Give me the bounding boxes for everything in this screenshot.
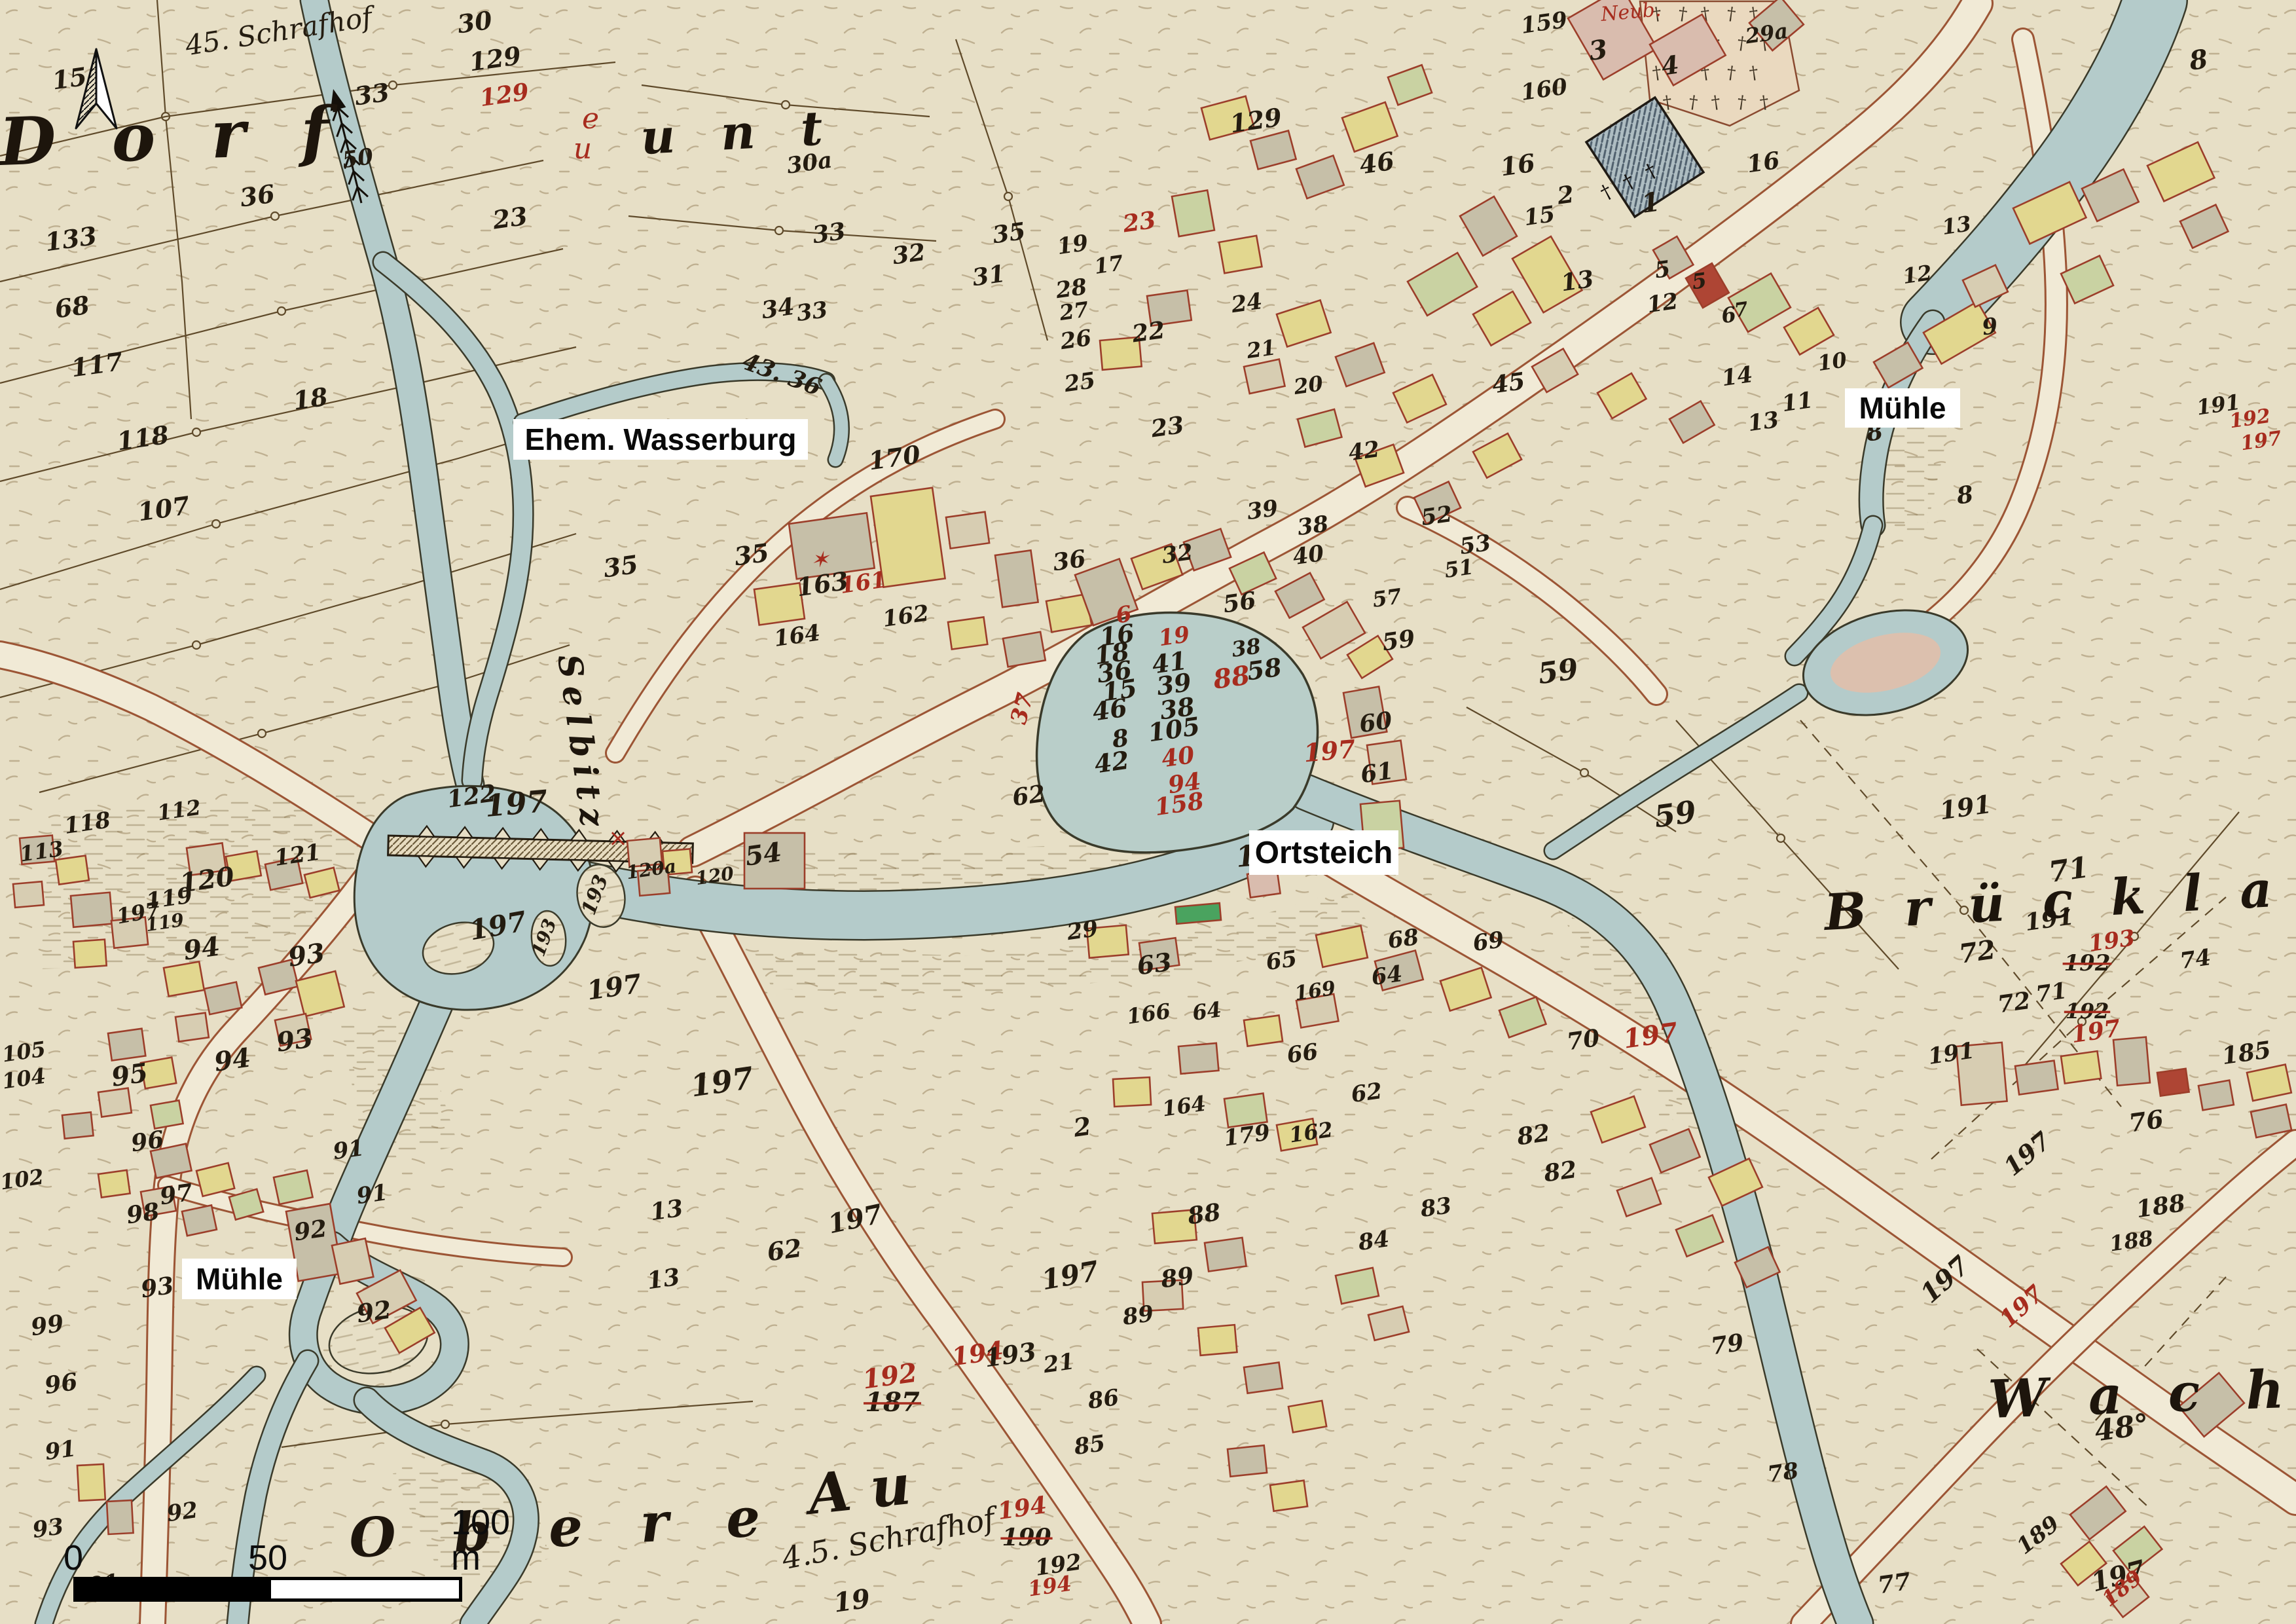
parcel-number: 36 [1051, 545, 1087, 577]
parcel-number: 72 [1957, 934, 1997, 969]
building [108, 1029, 145, 1061]
parcel-number: 35 [991, 217, 1027, 249]
survey-marker [278, 307, 285, 315]
building [151, 1100, 183, 1128]
parcel-number: 19 [1055, 230, 1089, 260]
field-name: Dorf [0, 90, 386, 181]
parcel-number: 92 [165, 1497, 199, 1527]
parcel-number: 23 [1149, 411, 1186, 443]
parcel-number: 72 [1996, 987, 2032, 1019]
parcel-number: 92 [293, 1215, 329, 1247]
survey-marker [271, 212, 279, 220]
map-canvas: †††††††††††††††††††††††15361336811711810… [0, 0, 2296, 1624]
parcel-number: 85 [1072, 1430, 1106, 1460]
parcel-number: 11 [1780, 387, 1814, 417]
parcel-number: 65 [1264, 946, 1298, 976]
survey-marker [258, 729, 266, 737]
parcel-number: 39 [1245, 495, 1279, 525]
parcel-number: 32 [891, 238, 927, 270]
building [98, 1170, 130, 1198]
parcel-number: 38 [1230, 633, 1262, 662]
parcel-number: 26 [1058, 325, 1093, 355]
parcel-number: 51 [1443, 554, 1475, 583]
building [332, 1238, 373, 1284]
survey-marker [192, 428, 200, 436]
building [71, 893, 113, 927]
parcel-number: 13 [649, 1194, 685, 1227]
map-label-ehem-wasserburg: Ehem. Wasserburg [513, 419, 808, 460]
parcel-number: 91 [331, 1135, 365, 1165]
parcel-number: 15 [50, 62, 89, 96]
parcel-number: 82 [1515, 1119, 1552, 1151]
parcel-number: 15 [1522, 201, 1556, 231]
building [204, 982, 242, 1015]
building [274, 1170, 313, 1204]
parcel-number: 57 [1371, 583, 1403, 612]
building [1172, 190, 1214, 236]
parcel-number: 33 [795, 297, 829, 327]
parcel-number: 84 [1356, 1226, 1391, 1256]
survey-marker [775, 227, 783, 234]
parcel-number: 66 [1285, 1039, 1319, 1069]
parcel-number: 52 [1419, 501, 1453, 531]
parcel-number: 13 [1559, 265, 1595, 297]
parcel-number: 46 [1358, 146, 1396, 180]
parcel-number: 97 [158, 1179, 194, 1211]
building [1228, 1445, 1267, 1477]
building [2157, 1069, 2189, 1096]
parcel-number: 35 [602, 549, 640, 583]
parcel-number: 88 [1186, 1198, 1222, 1230]
parcel-number: 96 [130, 1126, 166, 1158]
building [62, 1112, 94, 1138]
building [1219, 236, 1262, 273]
survey-marker [1777, 834, 1785, 842]
parcel-number: 16 [1745, 147, 1781, 179]
parcel-number: 93 [31, 1513, 65, 1543]
survey-marker [441, 1420, 449, 1428]
field-name: Au [801, 1450, 934, 1528]
parcel-number: 45 [1491, 367, 1527, 399]
parcel-number: 30 [456, 5, 494, 39]
parcel-number: 92 [355, 1295, 393, 1329]
parcel-number: 32 [1160, 539, 1194, 569]
parcel-number: 77 [1876, 1568, 1912, 1600]
parcel-number: 78 [1766, 1458, 1800, 1488]
building [77, 1464, 105, 1501]
building [1270, 1481, 1307, 1511]
parcel-number: 21 [1245, 335, 1277, 363]
parcel-number: 27 [1057, 297, 1090, 325]
survey-marker [389, 81, 397, 89]
river-confluence [354, 786, 594, 1010]
building [182, 1205, 217, 1236]
parcel-number: 82 [1542, 1156, 1578, 1188]
parcel-number: 197 [1302, 734, 1357, 768]
parcel-number: 71 [2034, 978, 2068, 1008]
parcel-number: 12 [1901, 260, 1933, 289]
parcel-number: 89 [1120, 1301, 1155, 1331]
parcel-number: 31 [971, 260, 1007, 292]
parcel-number: 59 [1381, 625, 1417, 657]
parcel-number: 63 [1135, 947, 1174, 981]
parcel-number: 76 [2127, 1104, 2166, 1138]
building [2061, 1051, 2101, 1083]
field-name: unt [639, 98, 869, 165]
map-label-muehle-northeast: Mühle [1845, 388, 1960, 428]
building [995, 550, 1038, 607]
scale-label-50: 50 [248, 1540, 287, 1576]
parcel-number: 20 [1292, 371, 1324, 399]
scale-bar-white-segment [268, 1577, 462, 1602]
parcel-number: 88 [1211, 659, 1252, 695]
parcel-number: 36 [238, 179, 277, 213]
survey-marker [192, 641, 200, 649]
building [2198, 1080, 2234, 1111]
parcel-number: 40 [1291, 540, 1326, 570]
parcel-number: 38 [1296, 511, 1330, 541]
parcel-number: 23 [1121, 206, 1157, 238]
parcel-number: 18 [291, 382, 330, 416]
parcel-number: 22 [1130, 316, 1167, 348]
parcel-number: 59 [1536, 652, 1580, 691]
parcel-number: 25 [1062, 367, 1097, 397]
building [1244, 1015, 1283, 1046]
parcel-number: 91 [355, 1179, 389, 1209]
parcel-number: 42 [1093, 745, 1131, 779]
parcel-number: 89 [1159, 1262, 1195, 1294]
scale-bar: 0 50 100 m [73, 1577, 462, 1602]
building [2113, 1037, 2150, 1086]
building [107, 1500, 134, 1534]
building [164, 961, 204, 996]
survey-marker [1004, 193, 1012, 200]
parcel-number: 94 [181, 931, 222, 966]
parcel-number: 54 [743, 836, 784, 872]
building [1198, 1325, 1237, 1356]
parcel-number: 74 [2178, 944, 2212, 974]
parcel-number: 60 [1358, 707, 1394, 739]
building [175, 1013, 209, 1042]
parcel-number: 17 [1093, 250, 1125, 279]
survey-marker [1580, 769, 1588, 777]
scale-label-0: 0 [64, 1540, 83, 1576]
parcel-number: 34 [760, 293, 796, 325]
parcel-number: 93 [274, 1022, 315, 1058]
parcel-number: 79 [1709, 1329, 1745, 1361]
building [946, 512, 989, 549]
parcel-number: 83 [1418, 1192, 1453, 1223]
parcel-number: 69 [1471, 927, 1505, 957]
parcel-number: 10 [1816, 347, 1848, 376]
parcel-number: 93 [286, 937, 327, 972]
parcel-number: 35 [733, 538, 771, 572]
parcel-number: 46 [1091, 693, 1129, 727]
parcel-number: 16 [1499, 148, 1537, 182]
parcel-number: 59 [1652, 794, 1698, 834]
parcel-number: 13 [1746, 407, 1780, 437]
building [1178, 1043, 1218, 1074]
historical-cadastral-map: †††††††††††††††††††††††15361336811711810… [0, 0, 2296, 1624]
building [13, 881, 44, 908]
parcel-number: 21 [1041, 1348, 1076, 1378]
parcel-number: 70 [1565, 1024, 1601, 1056]
parcel-number: 62 [765, 1233, 804, 1267]
parcel-number: 62 [1349, 1078, 1383, 1108]
parcel-number: 19 [831, 1583, 872, 1618]
parcel-number: 99 [29, 1310, 65, 1342]
parcel-number: 61 [1359, 757, 1395, 789]
map-label-muehle-southwest: Mühle [182, 1259, 297, 1299]
building [1288, 1401, 1326, 1432]
building [1175, 903, 1221, 924]
parcel-number: 24 [1229, 288, 1264, 318]
parcel-number: 56 [1222, 587, 1258, 619]
building [1205, 1238, 1247, 1272]
parcel-number: 68 [1386, 924, 1420, 954]
building [1244, 1362, 1283, 1393]
parcel-number: 94 [212, 1042, 253, 1077]
parcel-number: 62 [1011, 780, 1047, 812]
building [1003, 632, 1046, 667]
parcel-number: 93 [139, 1272, 175, 1304]
building [948, 617, 987, 649]
parcel-number: 23 [490, 201, 530, 235]
map-label-ortsteich: Ortsteich [1249, 830, 1398, 875]
parcel-number: 64 [1191, 997, 1223, 1025]
parcel-number: 33 [811, 217, 847, 249]
parcel-number: 12 [1645, 288, 1679, 318]
survey-marker [212, 520, 220, 528]
parcel-number: 42 [1347, 436, 1381, 466]
building [2015, 1061, 2058, 1095]
handwritten-note: u [574, 132, 592, 166]
parcel-number: 64 [1370, 961, 1404, 991]
parcel-number: 14 [1720, 361, 1754, 392]
parcel-number: 29 [1065, 915, 1099, 946]
parcel-number: 95 [109, 1057, 150, 1092]
parcel-number: 96 [43, 1368, 79, 1400]
scale-label-100m: 100 m [451, 1505, 510, 1576]
parcel-number: 68 [53, 290, 92, 324]
handwritten-note: ✶ [811, 547, 831, 573]
scale-bar-black-segment [73, 1577, 268, 1602]
parcel-number: 86 [1085, 1384, 1120, 1414]
building [1113, 1077, 1151, 1107]
parcel-number: 13 [1941, 211, 1973, 240]
handwritten-note: e [582, 102, 599, 136]
building [73, 940, 107, 968]
parcel-number: 98 [125, 1198, 161, 1230]
parcel-number: 91 [43, 1435, 77, 1466]
parcel-number: 13 [646, 1263, 682, 1295]
